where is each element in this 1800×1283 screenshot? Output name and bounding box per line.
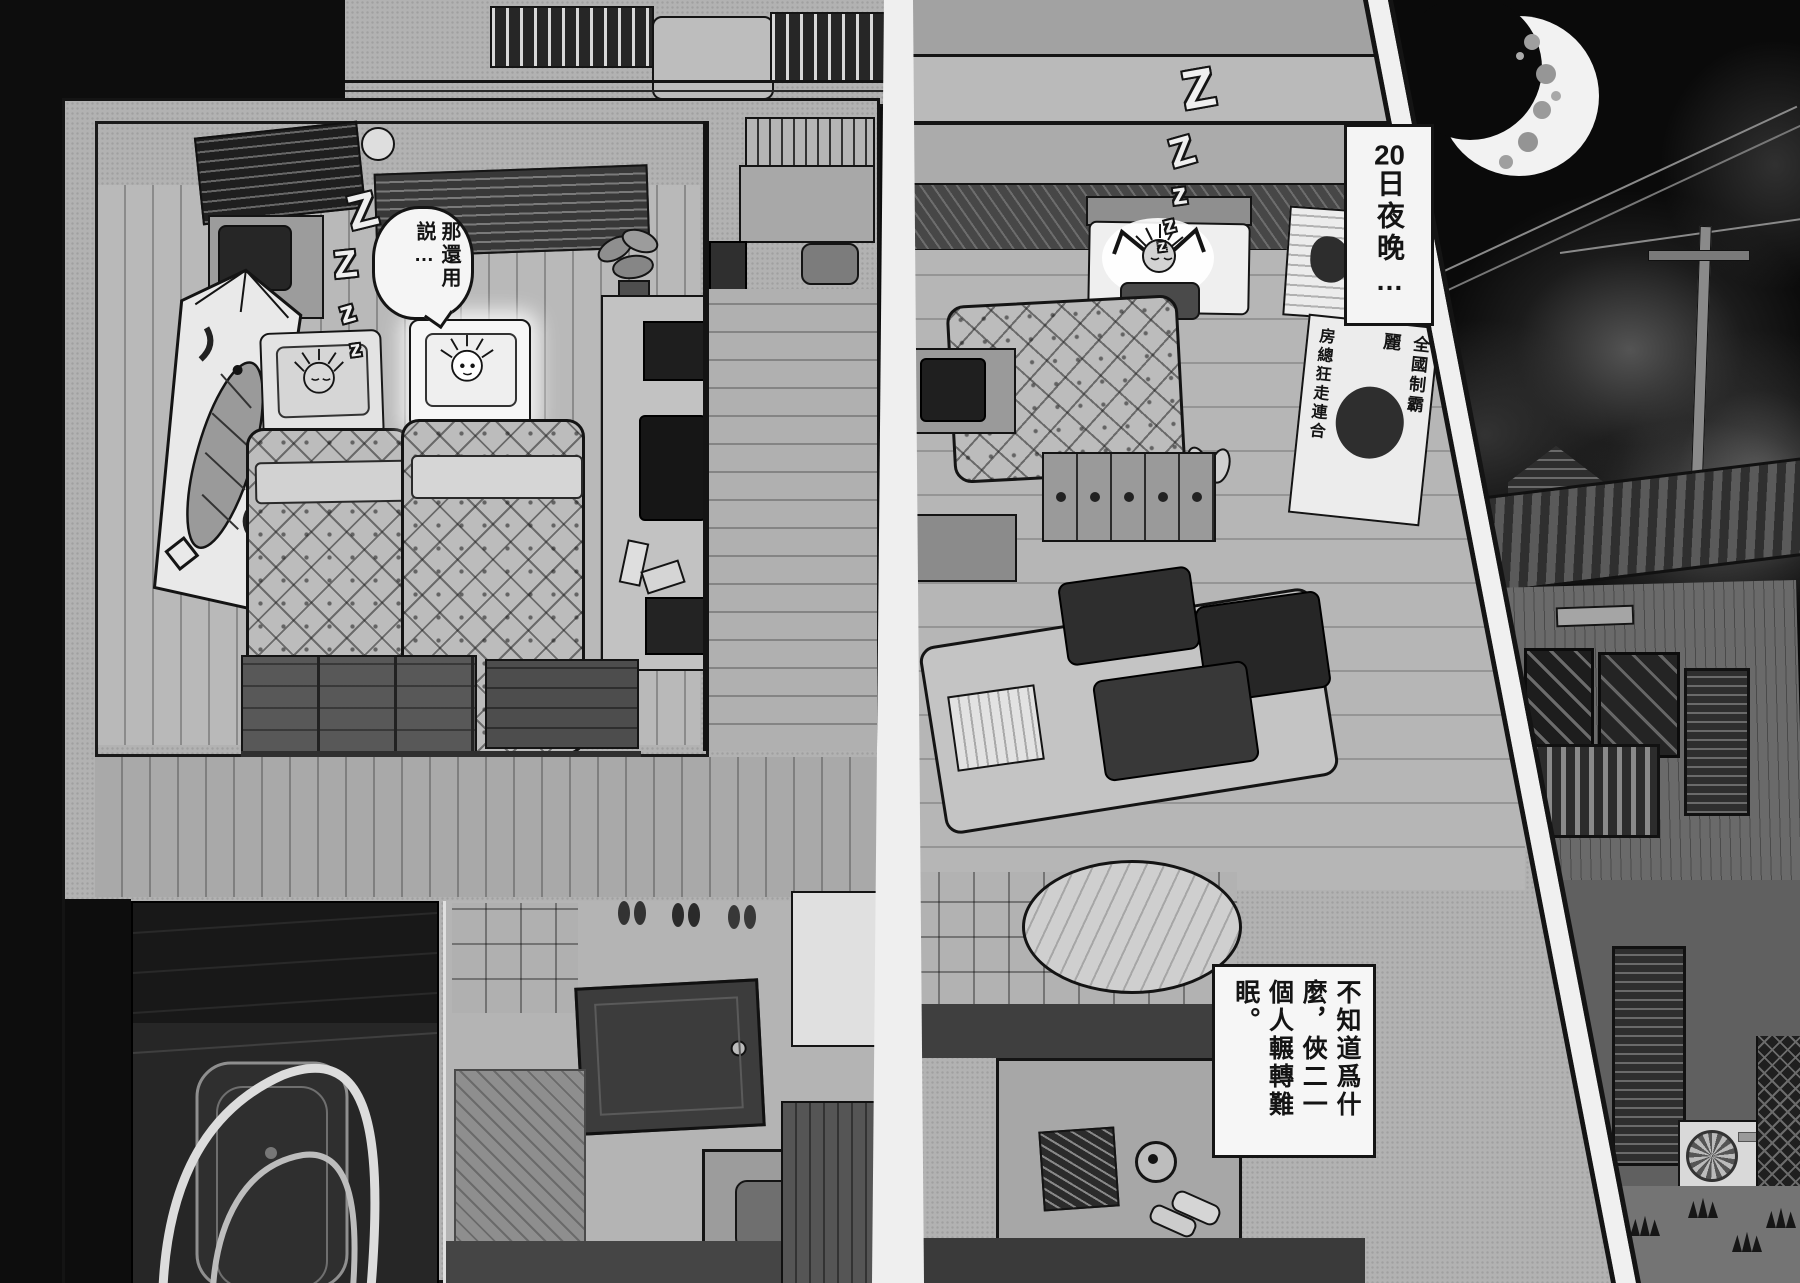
sleep-z: Z <box>332 243 360 288</box>
chair-icon <box>801 243 859 285</box>
drawer-handle-icon <box>1124 492 1134 502</box>
bed-headboard <box>652 16 774 100</box>
shutter-window <box>1684 668 1750 816</box>
window-blind-icon <box>490 6 654 68</box>
stove-unit <box>996 1058 1242 1242</box>
speech-line: 説… <box>411 221 436 307</box>
slippers-icon <box>688 903 700 927</box>
door-mat <box>485 659 639 749</box>
side-desk <box>739 165 875 243</box>
drawer-handle-icon <box>1090 492 1100 502</box>
slippers-icon <box>728 905 740 929</box>
slippers-icon <box>744 905 756 929</box>
round-table <box>1022 860 1242 994</box>
narration-line: 個人輾轉難 <box>1262 979 1296 1143</box>
speaker-icon <box>645 597 705 655</box>
clock-icon <box>361 127 395 161</box>
phone-icon <box>640 559 685 594</box>
house-sign <box>1556 605 1635 628</box>
wall-line <box>345 80 905 83</box>
slippers-icon <box>672 903 684 927</box>
tv-monitor-icon <box>639 415 707 521</box>
quilt-fold-left <box>255 460 410 505</box>
corridor-floor <box>95 757 877 897</box>
window-dark <box>1598 652 1680 758</box>
tatami-mats <box>241 655 477 753</box>
flag-poster: 全國制霸 麗 房總狂走連合 <box>1288 314 1440 527</box>
speech-line: 那還用 <box>436 221 461 307</box>
speech-bubble: 那還用 説… <box>372 206 474 320</box>
microwave <box>947 684 1045 772</box>
desk-right-wall <box>601 295 709 671</box>
speech-bubble-text: 那還用 説… <box>411 221 461 307</box>
caption-box: 20日夜晚… <box>1344 124 1434 326</box>
slippers-icon <box>634 901 646 925</box>
fridge <box>791 891 881 1047</box>
book-shelf <box>745 117 875 167</box>
drawer-handle-icon <box>1158 492 1168 502</box>
stove-knob-icon <box>1135 1141 1177 1183</box>
side-room-floor <box>709 289 877 751</box>
low-cabinet <box>905 514 1017 582</box>
fan-grille-icon <box>1038 1126 1119 1211</box>
quilt-fold-right <box>411 455 583 499</box>
narration-line: 麼，俠二一 <box>1296 979 1330 1143</box>
bathtub-and-steam-icon <box>133 903 437 1283</box>
knob-center <box>1148 1154 1158 1164</box>
tv-cabinet <box>908 348 1016 434</box>
shadow-area <box>65 899 131 1283</box>
tv-screen-icon <box>920 358 986 422</box>
crescent-moon-icon <box>1424 4 1604 194</box>
caption-date-number: 20 <box>1374 141 1405 169</box>
drawer-handle-icon <box>1192 492 1202 502</box>
speaker-icon <box>643 321 705 381</box>
ac-fan-icon <box>1686 1130 1738 1182</box>
tile-floor <box>452 903 578 1013</box>
awake-face-icon <box>439 335 495 391</box>
door-panel-line <box>594 996 744 1115</box>
counter-front <box>905 1238 1365 1283</box>
bathroom <box>131 901 439 1283</box>
kitchen-backsplash <box>905 1004 1245 1058</box>
entrance-door <box>574 978 765 1135</box>
heater-unit-icon <box>194 121 366 226</box>
flag-text-mid: 麗 <box>1377 331 1405 355</box>
caption-text: 20日夜晚… <box>1369 141 1409 300</box>
shutter-window <box>1612 946 1686 1166</box>
drawer-chest <box>1042 452 1216 542</box>
manga-spread: Z Z z z 那還用 説… <box>0 0 1800 1283</box>
slippers-icon <box>618 901 630 925</box>
narration-text: 不知道爲什 麼，俠二一 個人輾轉難 眠。 <box>1228 979 1363 1143</box>
narration-box: 不知道爲什 麼，俠二一 個人輾轉難 眠。 <box>1212 964 1376 1158</box>
ac-outdoor-unit <box>1678 1120 1766 1190</box>
narration-line: 不知道爲什 <box>1329 979 1363 1143</box>
cushion-box <box>1092 660 1261 783</box>
kitchen-dark-corner <box>781 1101 881 1283</box>
sleeping-face-icon <box>291 347 347 403</box>
drawer-handle-icon <box>1056 492 1066 502</box>
top-strip-panel <box>345 0 905 107</box>
narration-line: 眠。 <box>1228 979 1262 1143</box>
wall-line <box>345 90 905 92</box>
caption-date-text: 日夜晚… <box>1374 169 1405 300</box>
pole-crossarm-icon <box>1648 250 1750 261</box>
